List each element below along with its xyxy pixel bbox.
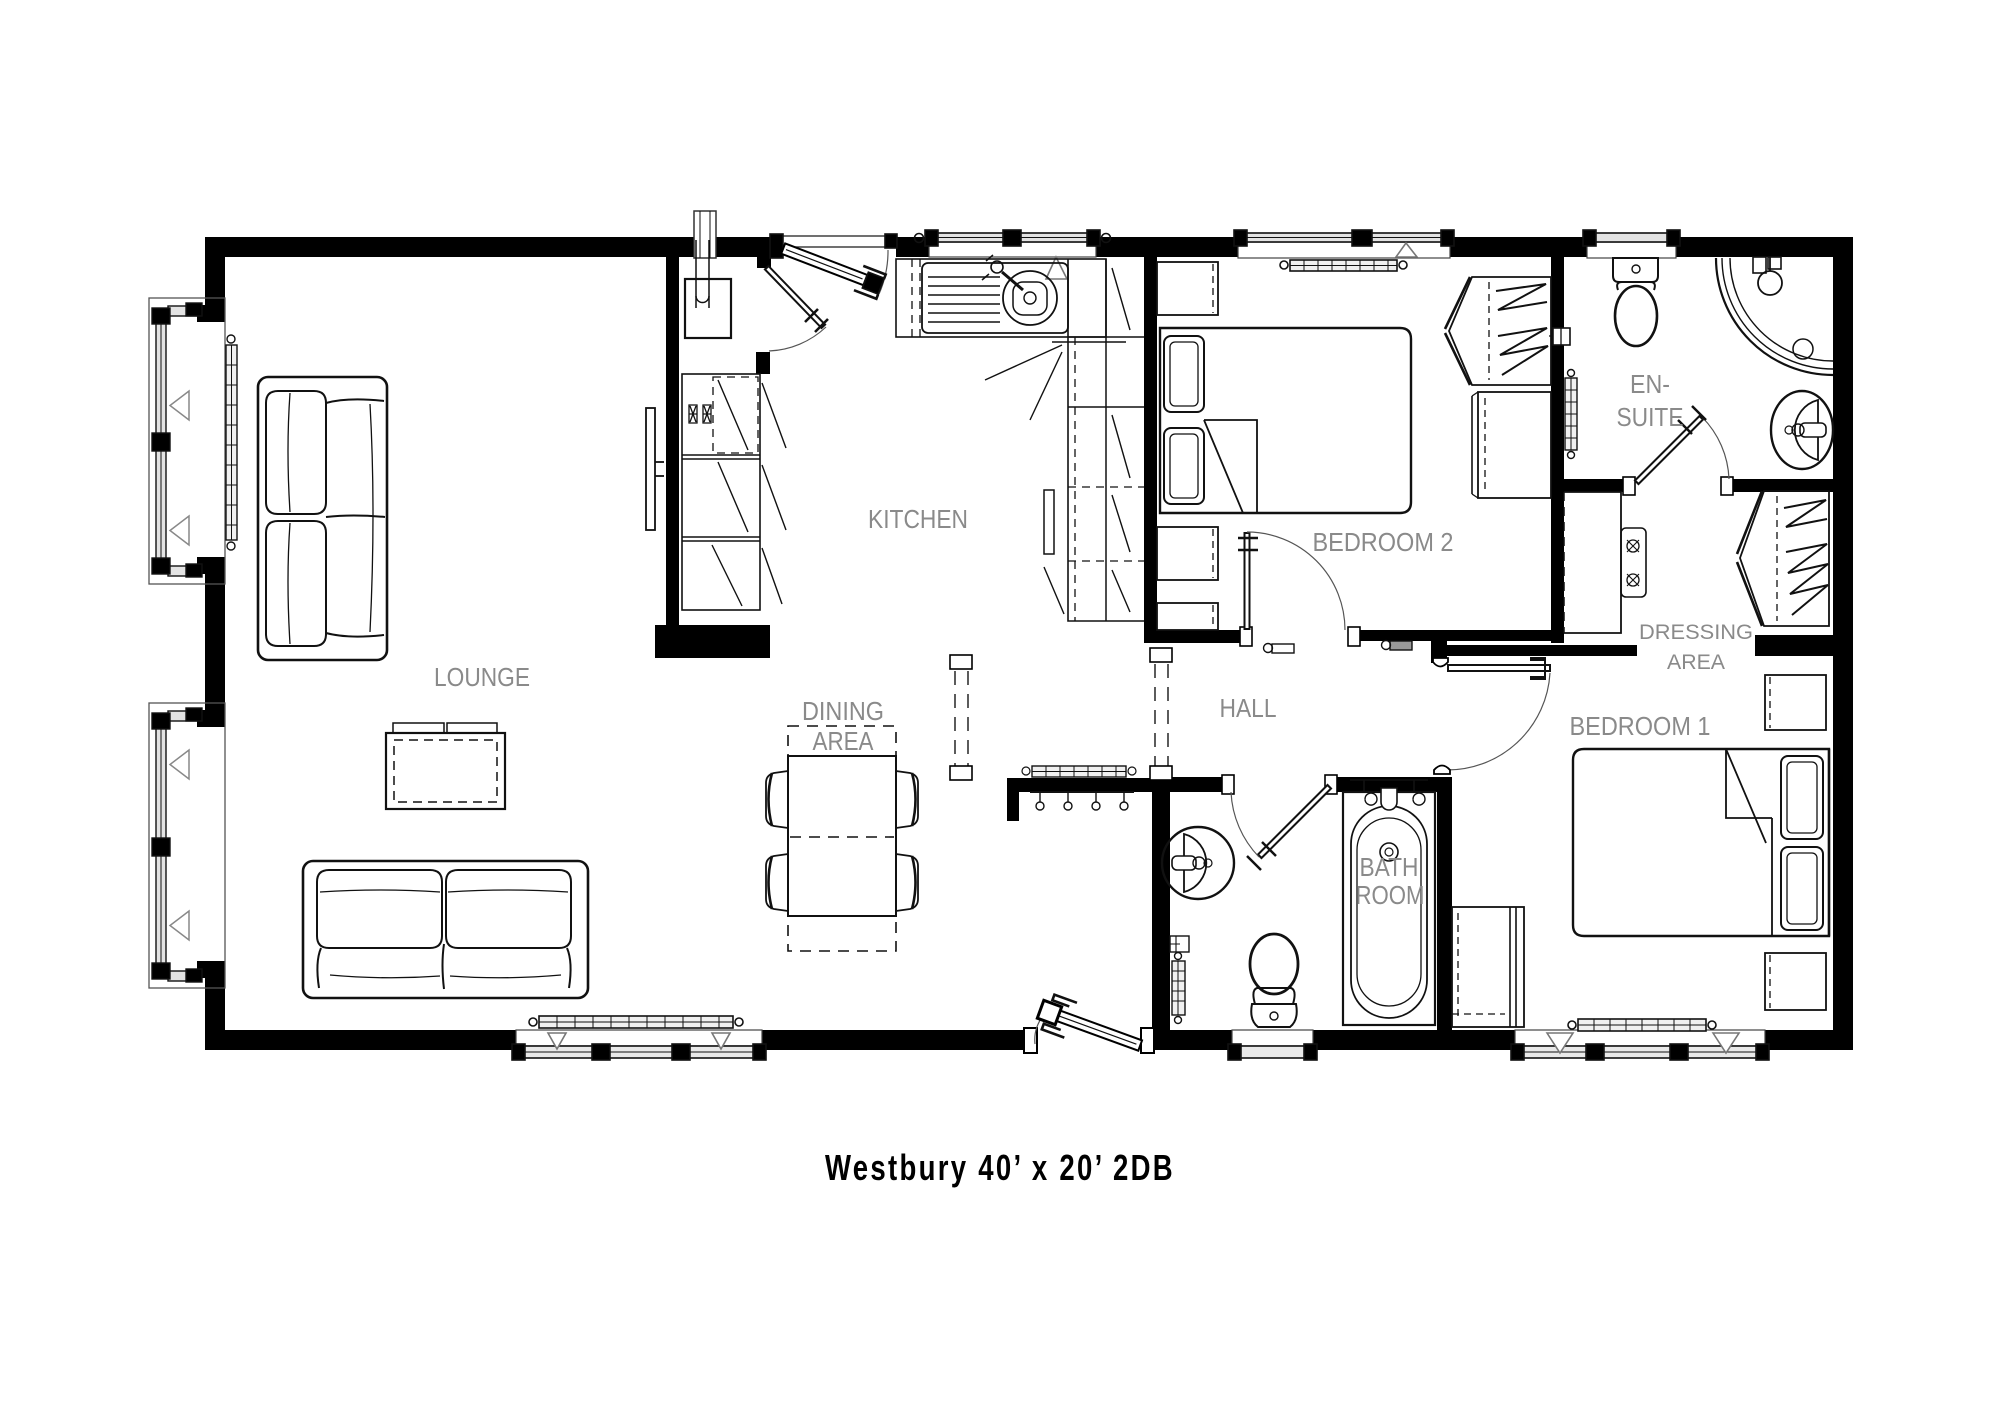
svg-text:AREA: AREA [1667, 651, 1725, 674]
svg-text:DINING: DINING [802, 696, 884, 726]
svg-text:LOUNGE: LOUNGE [434, 662, 530, 692]
svg-text:Westbury 40’ x 20’ 2DB: Westbury 40’ x 20’ 2DB [825, 1147, 1175, 1188]
svg-text:EN-: EN- [1630, 369, 1670, 399]
svg-text:SUITE: SUITE [1617, 402, 1684, 432]
svg-text:BEDROOM 1: BEDROOM 1 [1570, 711, 1711, 741]
svg-text:DRESSING: DRESSING [1639, 621, 1753, 644]
svg-text:KITCHEN: KITCHEN [868, 504, 968, 534]
svg-text:BATH: BATH [1360, 852, 1419, 882]
svg-text:BEDROOM 2: BEDROOM 2 [1313, 527, 1454, 557]
svg-text:HALL: HALL [1220, 693, 1277, 723]
svg-text:ROOM: ROOM [1356, 880, 1425, 910]
svg-text:AREA: AREA [813, 726, 875, 756]
